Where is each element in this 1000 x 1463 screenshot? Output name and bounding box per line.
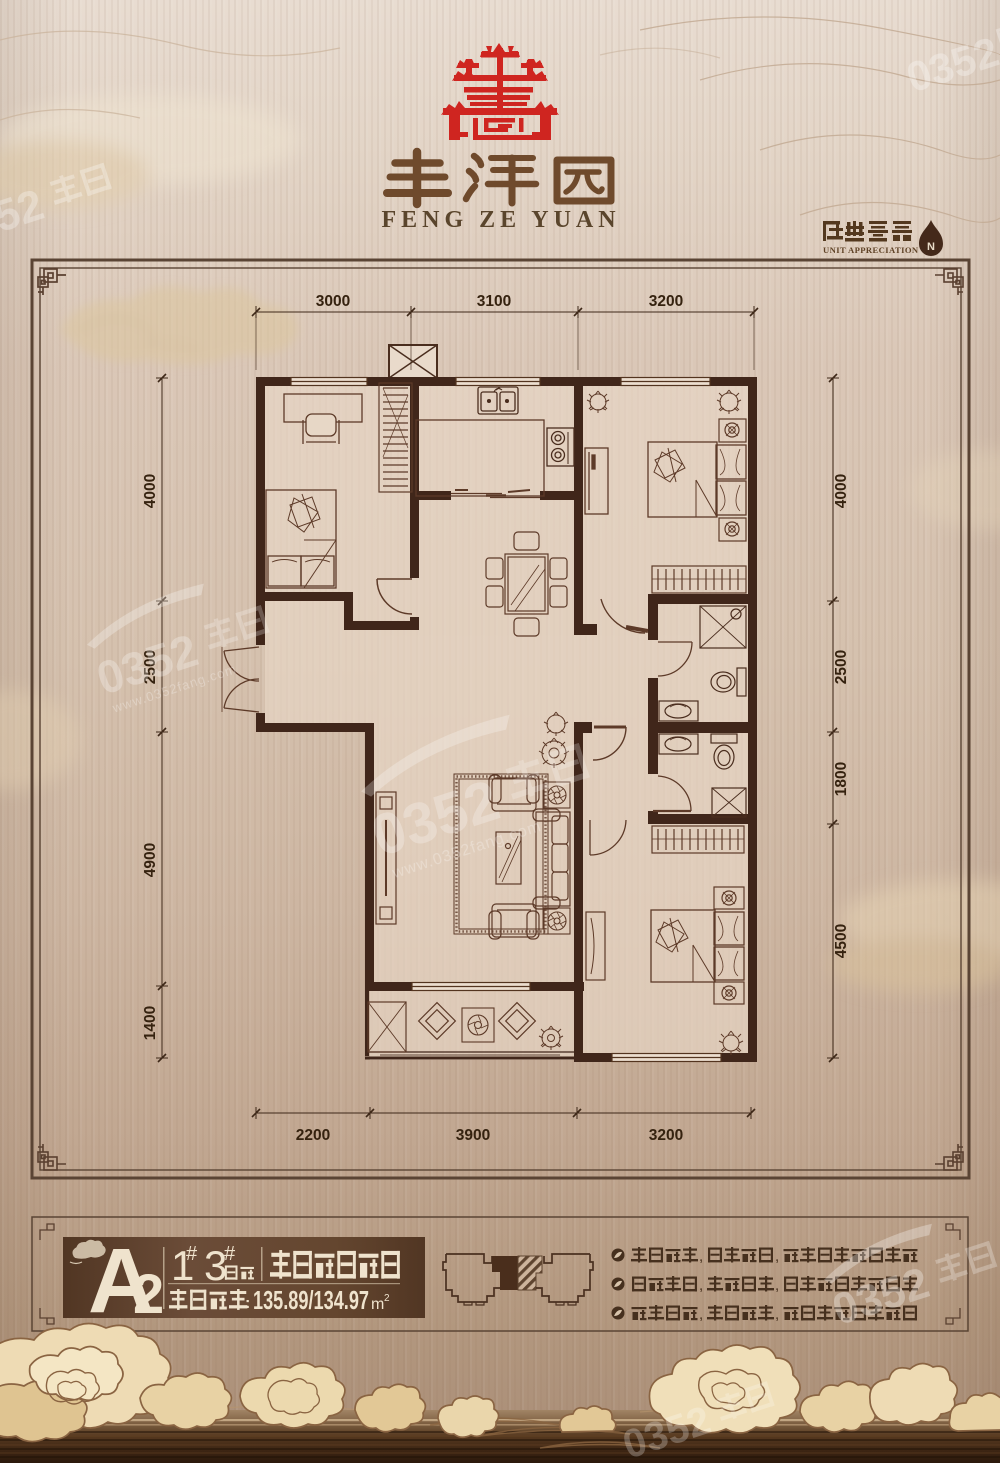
svg-text:,: , bbox=[699, 1277, 703, 1294]
svg-text:3000: 3000 bbox=[316, 293, 350, 310]
svg-text:4500: 4500 bbox=[833, 924, 850, 958]
svg-text::: : bbox=[245, 1295, 250, 1312]
svg-text:N: N bbox=[927, 241, 935, 253]
svg-text:3200: 3200 bbox=[649, 1127, 683, 1144]
svg-text:2: 2 bbox=[133, 1262, 164, 1325]
svg-text:#: # bbox=[186, 1243, 198, 1265]
svg-text:0352: 0352 bbox=[901, 28, 1000, 102]
svg-text:,: , bbox=[699, 1306, 703, 1323]
svg-text:,: , bbox=[775, 1306, 779, 1323]
svg-text:4900: 4900 bbox=[142, 843, 159, 877]
svg-text:4000: 4000 bbox=[142, 474, 159, 508]
svg-text:3900: 3900 bbox=[456, 1127, 490, 1144]
svg-text:m: m bbox=[371, 1296, 384, 1313]
svg-text:2: 2 bbox=[384, 1293, 390, 1304]
svg-text:FENG ZE YUAN: FENG ZE YUAN bbox=[381, 207, 620, 233]
svg-text:1800: 1800 bbox=[833, 762, 850, 796]
svg-text:1400: 1400 bbox=[142, 1006, 159, 1040]
svg-text:3100: 3100 bbox=[477, 293, 511, 310]
svg-text:UNIT APPRECIATION: UNIT APPRECIATION bbox=[823, 245, 919, 255]
svg-text:4000: 4000 bbox=[833, 474, 850, 508]
svg-text:,: , bbox=[775, 1277, 779, 1294]
svg-text:,: , bbox=[775, 1248, 779, 1265]
svg-text:2200: 2200 bbox=[296, 1127, 330, 1144]
svg-text:,: , bbox=[699, 1248, 703, 1265]
svg-text:#: # bbox=[224, 1243, 236, 1265]
svg-text:2500: 2500 bbox=[833, 650, 850, 684]
svg-text:135.89/134.97: 135.89/134.97 bbox=[253, 1285, 369, 1315]
svg-text:3200: 3200 bbox=[649, 293, 683, 310]
